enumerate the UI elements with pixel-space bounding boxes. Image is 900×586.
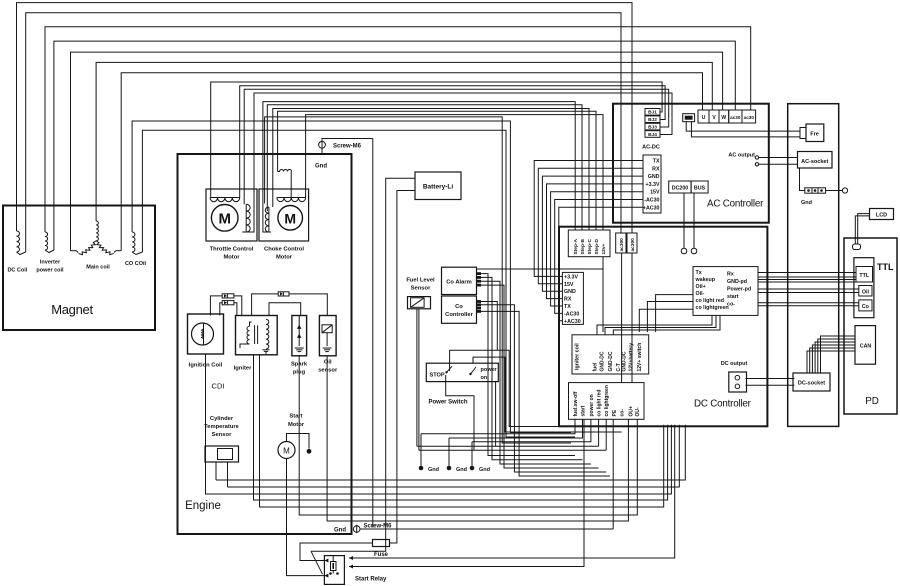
svg-text:DC Coil: DC Coil xyxy=(7,268,27,274)
svg-text:+AC30: +AC30 xyxy=(564,319,581,325)
svg-text:co light red: co light red xyxy=(597,390,603,417)
svg-text:Co: Co xyxy=(862,304,870,310)
svg-text:fuel: fuel xyxy=(593,362,599,372)
svg-text:W: W xyxy=(721,115,726,121)
svg-text:Power Switch: Power Switch xyxy=(428,400,467,406)
svg-text:GND: GND xyxy=(648,174,660,180)
svg-text:Gnd: Gnd xyxy=(334,528,346,534)
svg-text:DC200: DC200 xyxy=(672,186,689,192)
svg-text:M: M xyxy=(218,211,231,228)
svg-text:Controller: Controller xyxy=(445,312,473,318)
svg-text:Choke Control: Choke Control xyxy=(264,247,304,253)
svg-text:TX: TX xyxy=(564,304,571,310)
svg-text:12v+: 12v+ xyxy=(601,243,607,254)
svg-text:Magnet: Magnet xyxy=(51,302,93,317)
svg-text:+AC30: +AC30 xyxy=(643,205,660,211)
svg-text:GND-DC: GND-DC xyxy=(622,351,628,371)
svg-text:Step-A: Step-A xyxy=(573,239,579,255)
svg-text:U: U xyxy=(702,115,706,121)
svg-text:AC output: AC output xyxy=(728,153,755,159)
svg-text:PD: PD xyxy=(865,396,879,407)
svg-text:fuel.sw-off: fuel.sw-off xyxy=(573,391,579,416)
svg-text:Motor: Motor xyxy=(288,422,305,428)
svg-text:Gnd: Gnd xyxy=(315,164,327,170)
svg-text:Throttle Control: Throttle Control xyxy=(210,247,254,253)
svg-text:co-: co- xyxy=(727,302,735,308)
svg-text:ac30: ac30 xyxy=(730,115,741,120)
svg-text:AC Controller: AC Controller xyxy=(707,199,764,210)
svg-text:ac300: ac300 xyxy=(619,238,625,252)
svg-text:Step-C: Step-C xyxy=(587,239,593,255)
svg-text:Gnd: Gnd xyxy=(479,467,490,473)
svg-text:CAN: CAN xyxy=(860,344,872,350)
svg-text:Co Alarm: Co Alarm xyxy=(446,280,472,286)
svg-text:GND-DC: GND-DC xyxy=(600,351,606,371)
svg-text:Sensor: Sensor xyxy=(411,286,431,292)
svg-text:Step-D: Step-D xyxy=(594,239,600,255)
svg-text:AC-DC: AC-DC xyxy=(642,145,660,151)
svg-text:BJ2: BJ2 xyxy=(648,117,657,123)
svg-text:Temperature: Temperature xyxy=(204,424,239,430)
svg-text:co-: co- xyxy=(620,409,626,417)
svg-text:start: start xyxy=(581,405,587,416)
svg-text:Inverter: Inverter xyxy=(40,260,61,266)
svg-text:wakeup: wakeup xyxy=(695,277,716,283)
svg-text:15V: 15V xyxy=(650,190,660,196)
svg-text:co lightgreen: co lightgreen xyxy=(604,385,610,416)
svg-text:on: on xyxy=(481,375,488,381)
svg-text:GND-DC: GND-DC xyxy=(608,351,614,371)
svg-text:STOP: STOP xyxy=(430,372,445,378)
svg-text:RX: RX xyxy=(564,297,572,303)
svg-text:BUS: BUS xyxy=(694,186,706,192)
svg-text:Main coil: Main coil xyxy=(86,265,110,271)
svg-text:Step-B: Step-B xyxy=(580,239,586,255)
svg-text:GND-pd: GND-pd xyxy=(727,279,747,285)
svg-text:Start Relay: Start Relay xyxy=(355,577,387,583)
svg-text:PE: PE xyxy=(612,409,618,416)
svg-text:Battery-Li: Battery-Li xyxy=(423,184,454,191)
svg-text:sensor: sensor xyxy=(318,368,338,374)
svg-text:CDI: CDI xyxy=(212,382,225,391)
svg-text:co lightgreen: co lightgreen xyxy=(696,305,729,311)
svg-text:+3.3V: +3.3V xyxy=(564,274,578,280)
svg-text:Gnd: Gnd xyxy=(456,467,467,473)
svg-text:OU+: OU+ xyxy=(629,406,635,417)
svg-text:M: M xyxy=(283,447,290,456)
svg-text:Tx: Tx xyxy=(696,270,702,276)
svg-text:ac30: ac30 xyxy=(744,115,755,120)
svg-text:Co: Co xyxy=(455,304,463,310)
svg-text:CO COil: CO COil xyxy=(125,261,147,267)
svg-text:LCD: LCD xyxy=(876,213,887,219)
svg-text:M: M xyxy=(284,211,296,227)
svg-text:+3.3V: +3.3V xyxy=(646,182,660,188)
svg-text:Engine: Engine xyxy=(185,500,221,512)
svg-text:DC-socket: DC-socket xyxy=(798,381,825,387)
svg-text:Fuse: Fuse xyxy=(374,552,389,558)
svg-text:-AC30: -AC30 xyxy=(644,198,659,204)
svg-text:OU-: OU- xyxy=(635,407,641,417)
svg-text:BJ3: BJ3 xyxy=(648,125,657,131)
svg-text:TTL: TTL xyxy=(859,273,869,279)
svg-text:Motor: Motor xyxy=(276,255,293,261)
svg-text:TX: TX xyxy=(653,159,660,165)
svg-text:15V: 15V xyxy=(564,282,574,288)
svg-text:GND: GND xyxy=(564,289,576,295)
svg-text:Igniter: Igniter xyxy=(234,366,252,372)
svg-text:Motor: Motor xyxy=(223,255,240,261)
svg-text:TTL: TTL xyxy=(877,262,894,272)
svg-text:Gnd: Gnd xyxy=(801,200,812,206)
svg-text:Igniter coil: Igniter coil xyxy=(575,343,581,370)
svg-text:Start: Start xyxy=(289,414,302,420)
svg-text:DC Controller: DC Controller xyxy=(694,399,752,410)
svg-text:RX: RX xyxy=(652,166,660,172)
svg-text:Oil: Oil xyxy=(324,360,332,366)
svg-text:power coil: power coil xyxy=(36,268,64,274)
svg-text:power: power xyxy=(481,367,498,373)
svg-text:AC-socket: AC-socket xyxy=(801,159,828,165)
svg-text:12V+battery: 12V+battery xyxy=(629,343,635,372)
svg-text:Fre: Fre xyxy=(810,132,819,138)
svg-text:-AC30: -AC30 xyxy=(564,311,579,317)
svg-text:ac300: ac300 xyxy=(630,238,636,252)
svg-text:BJ4: BJ4 xyxy=(648,132,657,138)
svg-text:Cylinder: Cylinder xyxy=(210,416,234,422)
svg-text:12V+ switch: 12V+ switch xyxy=(637,343,643,372)
svg-text:Oil+: Oil+ xyxy=(696,284,706,290)
svg-text:Oil: Oil xyxy=(862,290,870,296)
svg-text:DC output: DC output xyxy=(721,361,748,367)
svg-text:power on: power on xyxy=(589,394,595,416)
svg-text:Sensor: Sensor xyxy=(212,432,232,438)
svg-text:Gnd: Gnd xyxy=(428,467,439,473)
svg-text:Power-pd: Power-pd xyxy=(727,287,751,293)
svg-text:Fuel Level: Fuel Level xyxy=(406,278,435,284)
svg-text:Rx: Rx xyxy=(727,272,734,278)
svg-text:Oil-: Oil- xyxy=(696,291,705,297)
svg-text:start: start xyxy=(727,294,739,300)
svg-text:Screw-M6: Screw-M6 xyxy=(333,144,362,150)
svg-text:co light red: co light red xyxy=(696,298,725,304)
svg-text:BJ1: BJ1 xyxy=(648,110,657,116)
